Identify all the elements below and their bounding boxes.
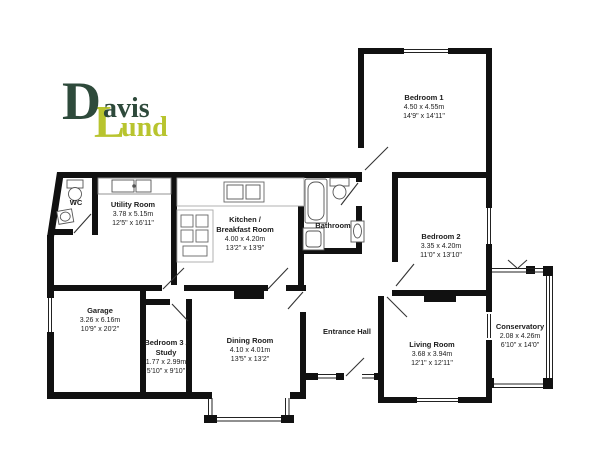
sink-icon xyxy=(351,221,364,242)
room-label-bathroom: Bathroom xyxy=(315,221,350,231)
conservatory-casement xyxy=(508,260,517,268)
dining-door xyxy=(288,292,303,309)
floorplan-page: D avis L und xyxy=(0,0,600,451)
room-label-garage: Garage 3.26 x 6.16m 10'9" x 20'2" xyxy=(80,306,120,334)
shower-icon xyxy=(303,228,324,250)
room-label-living-room: Living Room 3.68 x 3.94m 12'1" x 12'11" xyxy=(409,340,454,368)
room-label-conservatory: Conservatory 2.08 x 4.26m 6'10" x 14'0" xyxy=(496,322,544,350)
bedroom2-door xyxy=(396,264,414,286)
bedroom1-door xyxy=(365,147,388,170)
room-label-kitchen: Kitchen / Breakfast Room 4.00 x 4.20m 13… xyxy=(216,215,274,253)
conservatory-casement xyxy=(518,260,527,268)
room-label-utility: Utility Room 3.78 x 5.15m 12'5" x 16'11" xyxy=(111,200,155,228)
kitchen-door xyxy=(268,268,288,289)
fixtures xyxy=(57,178,364,262)
room-label-bedroom3: Bedroom 3 / Study 1.77 x 2.99m 5'10" x 9… xyxy=(144,338,187,376)
company-logo: D avis L und xyxy=(0,0,200,90)
chimney-breast xyxy=(234,285,264,299)
living-room-door xyxy=(387,297,407,317)
bedroom3-door xyxy=(172,304,188,321)
room-label-wc: WC xyxy=(70,198,83,208)
room-label-bedroom2: Bedroom 2 3.35 x 4.20m 11'0" x 13'10" xyxy=(420,232,462,260)
room-label-bedroom1: Bedroom 1 4.50 x 4.55m 14'9" x 14'11" xyxy=(403,93,445,121)
bathtub-icon xyxy=(305,179,327,223)
kitchen-counter xyxy=(177,178,304,206)
sink-icon xyxy=(57,209,74,224)
hob-icon xyxy=(177,210,213,262)
chimney-breast xyxy=(424,290,456,302)
utility-sink-icon xyxy=(98,178,171,194)
room-label-entrance-hall: Entrance Hall xyxy=(323,327,371,337)
logo-initial-d: D xyxy=(62,70,101,132)
diagonal-wall xyxy=(47,172,64,237)
toilet-icon xyxy=(330,178,349,199)
front-door xyxy=(346,358,364,376)
wc-door xyxy=(74,214,91,233)
logo-word-davis: avis xyxy=(103,93,150,125)
room-label-dining: Dining Room 4.10 x 4.01m 13'5" x 13'2" xyxy=(227,336,274,364)
